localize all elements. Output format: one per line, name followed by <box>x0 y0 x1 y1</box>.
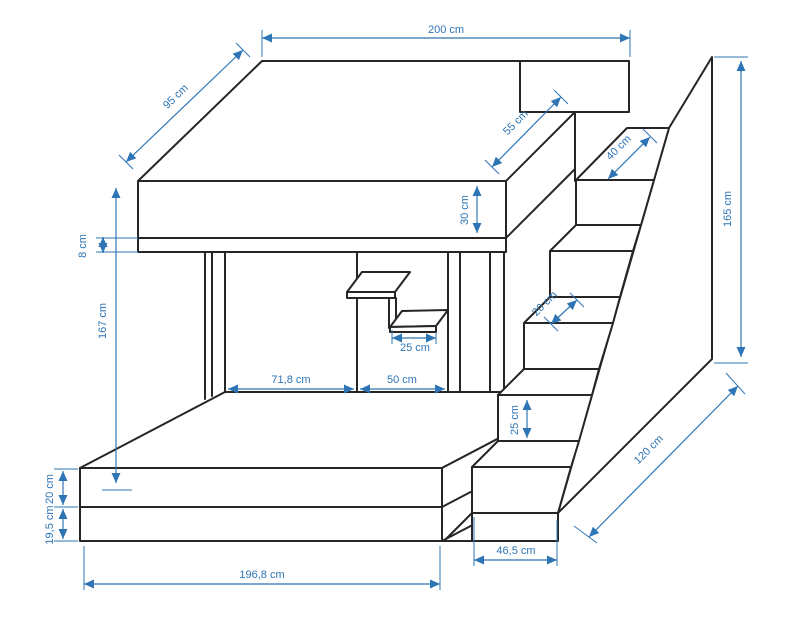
dim-label-bed-lower-height: 19,5 cm <box>44 505 56 544</box>
dim-label-top-depth: 95 cm <box>161 82 191 111</box>
dim-label-clearance-height: 167 cm <box>97 303 109 339</box>
step1-riser <box>472 467 571 513</box>
structure-lines <box>80 57 712 541</box>
step4-tread <box>550 225 641 251</box>
left-leg <box>205 252 212 399</box>
technical-drawing-page: 200 cm 95 cm 55 cm 40 cm 30 cm 8 cm 167 … <box>0 0 792 619</box>
dim-label-bed-upper-height: 20 cm <box>44 474 56 504</box>
stair-base <box>472 513 558 541</box>
dim-label-shelf-width: 25 cm <box>400 342 430 354</box>
dim-label-total-height: 165 cm <box>722 191 734 227</box>
dim-label-panel-right-width: 50 cm <box>387 374 417 386</box>
dim-label-panel-left-width: 71,8 cm <box>271 374 310 386</box>
bunk-rail <box>138 238 506 252</box>
shelf-upper-front <box>347 292 395 298</box>
step2-tread <box>498 369 599 395</box>
shelf-lower-front <box>390 326 436 332</box>
bed-front-face <box>80 468 442 541</box>
dim-label-mattress-height: 30 cm <box>459 195 471 225</box>
step5-riser <box>576 180 654 225</box>
dim-label-rail-height: 8 cm <box>77 234 89 258</box>
dim-label-riser-height: 25 cm <box>509 405 521 435</box>
dim-label-bed-length: 196,8 cm <box>239 569 284 581</box>
step4-riser <box>550 251 633 297</box>
step3-riser <box>524 323 613 369</box>
right-post <box>490 252 504 392</box>
bunk-bed-diagram: 200 cm 95 cm 55 cm 40 cm 30 cm 8 cm 167 … <box>0 0 792 619</box>
bunk-top-face <box>138 61 629 181</box>
dim-label-top-width: 200 cm <box>428 24 464 36</box>
bunk-front-face <box>138 181 506 238</box>
dim-label-stair-width: 46,5 cm <box>496 545 535 557</box>
dim-label-stair-diagonal: 120 cm <box>632 433 666 467</box>
